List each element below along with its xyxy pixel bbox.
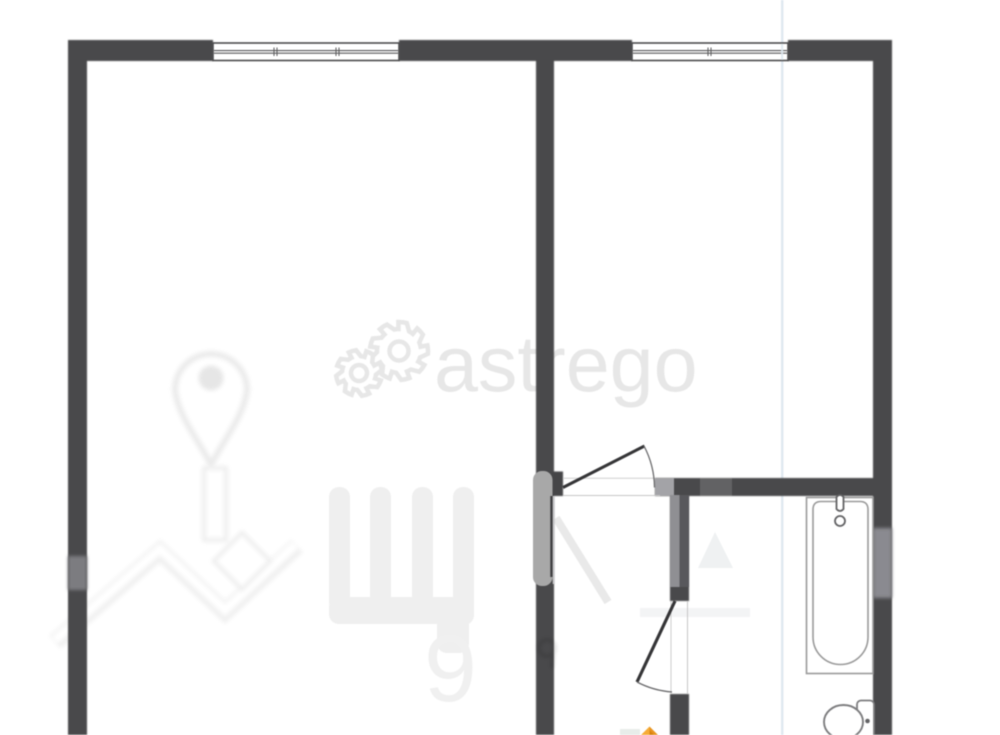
- svg-text:9: 9: [424, 616, 477, 722]
- svg-text:astrego: astrego: [434, 319, 698, 408]
